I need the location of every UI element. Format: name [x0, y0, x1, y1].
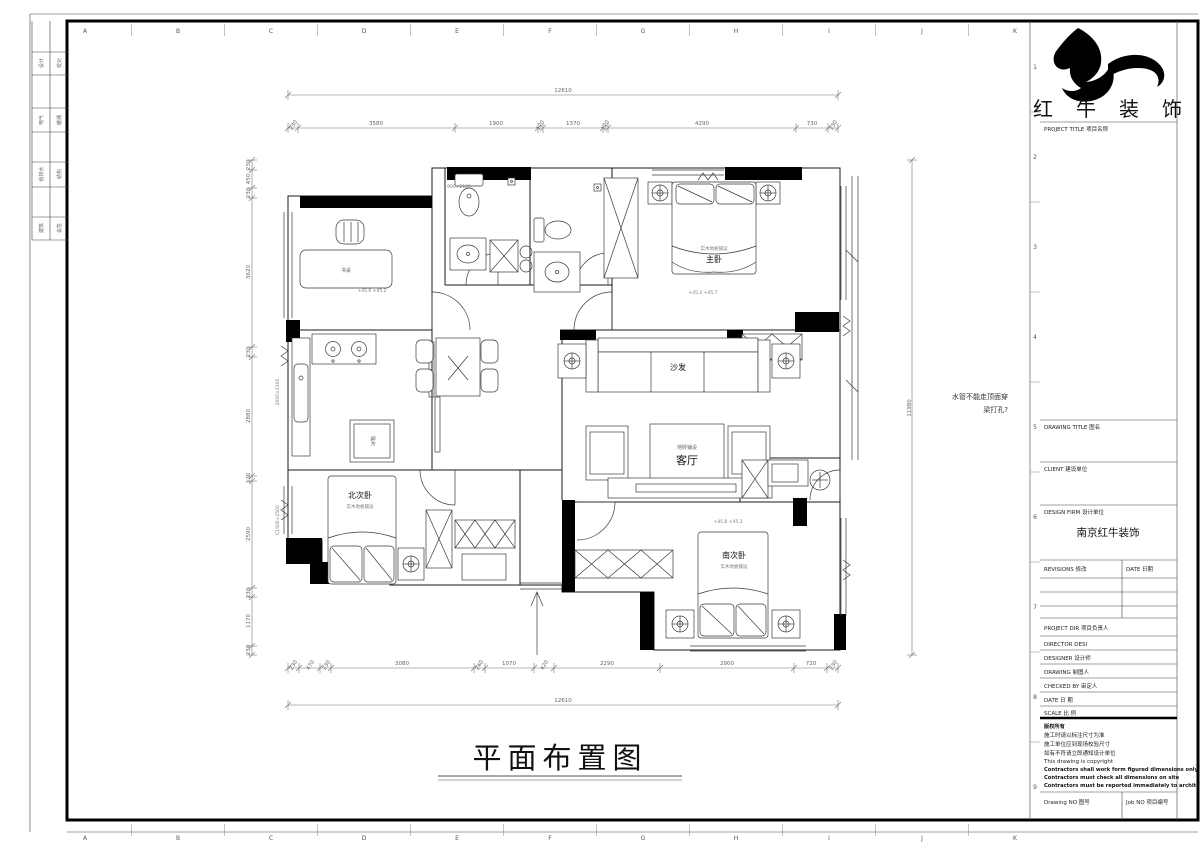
note-line: This drawing is copyright [1043, 759, 1114, 765]
grid-ref-label: E [455, 28, 459, 35]
client-label: CLIENT 建设单位 [1044, 465, 1088, 473]
elevation-note: +45.8 +45.3 [713, 519, 742, 525]
grid-ref-label: C [269, 28, 273, 35]
south-bedroom-label: 南次卧 [722, 550, 746, 560]
grid-ref-label: J [920, 835, 923, 842]
title-block: 红 牛 装 饰 PROJECT TITLE 项目名称 DRAWING TITLE… [1033, 28, 1200, 820]
date-label: DATE 日 期 [1044, 697, 1073, 704]
drawing-title-label: DRAWING TITLE 图名 [1044, 423, 1100, 431]
desk-label: 书桌 [341, 267, 351, 274]
dim: 230 [246, 159, 252, 170]
dim: 4290 [695, 121, 709, 127]
note-line: Contractors must check all dimensions on… [1044, 775, 1180, 781]
window-spec-note: 2000×2100 [275, 379, 281, 406]
dimension-lines [247, 90, 917, 710]
signature-strip: 设计 校对 电气 暖通 给排水 结构 建筑 会签 [32, 21, 68, 240]
elevation-note: +45.2 +45.7 [688, 290, 717, 296]
dim: 730 [807, 121, 818, 127]
dim: 420 [540, 659, 551, 672]
grid-ref-label: B [176, 28, 180, 35]
grid-ref-label: C [269, 835, 273, 842]
grid-letters: AABBCCDDEEFFGGHHIIJJKK123456789 [83, 28, 1037, 842]
dim-top-overall: 12610 [554, 88, 572, 94]
grid-ref-label: G [641, 28, 646, 35]
strip-label: 校对 [56, 58, 63, 68]
dim: 230 [246, 644, 252, 655]
grid-ref-label: D [362, 835, 367, 842]
dim: 1900 [489, 121, 503, 127]
strip-label: 电气 [38, 115, 45, 125]
grid-ref-label: A [83, 28, 88, 35]
copyright-notes: 版权所有 施工时请以标注尺寸为准 施工单位应到现场校验尺寸 如有不符请立即通知设… [1043, 722, 1200, 789]
strip-label: 设计 [38, 58, 45, 68]
grid-ref-label: B [176, 835, 180, 842]
grid-ref-label: I [828, 835, 830, 842]
window-spec-note: C1500×1500 [275, 505, 281, 535]
note-line: Contractors must be reported immediately… [1044, 783, 1200, 789]
strip-label: 给排水 [38, 166, 45, 181]
dim: 720 [806, 661, 817, 667]
grid-ref-label: 4 [1033, 334, 1037, 341]
dim: 120 [246, 472, 252, 483]
grid-ref-label: 3 [1033, 244, 1037, 251]
note-line: Contractors shall work form figured dime… [1044, 767, 1199, 773]
dim-right-overall: 11980 [907, 399, 913, 417]
project-dir-label: PROJECT DIR 项目负责人 [1044, 624, 1109, 632]
north-bedroom [328, 476, 452, 584]
grid-ref-label: 9 [1033, 784, 1037, 791]
grid-ref-label: I [828, 28, 830, 35]
designer-label: DESIGNER 设计师 [1044, 654, 1091, 662]
grid-ref-label: 8 [1033, 694, 1037, 701]
master-bedroom-label: 主卧 [706, 254, 722, 264]
grid-ref-label: H [734, 28, 739, 35]
project-title-label: PROJECT TITLE 项目名称 [1044, 125, 1109, 133]
grid-ref-label: J [920, 28, 923, 35]
drawing-no-label: Drawing NO 图号 [1044, 798, 1090, 806]
floor-plan: 书桌 冰箱 沙发 地砖铺设 客厅 实木地板铺设 主卧 北次卧 实木地板铺设 南次… [246, 88, 1008, 780]
dim: 1170 [246, 614, 252, 628]
bathroom-right [534, 184, 601, 292]
design-firm-value: 南京红牛装饰 [1077, 526, 1140, 539]
grid-ref-label: D [362, 28, 367, 35]
dim: 2880 [246, 409, 252, 423]
dim-bottom-overall: 12610 [554, 698, 572, 704]
dim: 450 [246, 173, 252, 184]
revisions-date-label: DATE 日期 [1126, 566, 1154, 573]
note-line: 版权所有 [1043, 722, 1065, 730]
strip-label: 结构 [56, 169, 63, 179]
grid-ref-label: 7 [1033, 604, 1037, 611]
dim: 470 [306, 659, 317, 672]
drawing-label: DRAWING 制图人 [1044, 668, 1089, 676]
design-firm-label: DESIGN FIRM 设计单位 [1044, 508, 1105, 516]
drawing-sheet: 设计 校对 电气 暖通 给排水 结构 建筑 会签 AABBCCDDEEFFGGH… [0, 0, 1200, 844]
grid-ref-label: 2 [1033, 154, 1037, 161]
dim: 1370 [566, 121, 580, 127]
grid-ref-label: 5 [1033, 424, 1037, 431]
strip-label: 会签 [56, 223, 63, 233]
dim: 120 [536, 119, 547, 132]
dim: 230 [246, 587, 252, 598]
entry-arrow [531, 592, 543, 655]
master-bedroom [604, 178, 780, 278]
dim: 1070 [502, 661, 516, 667]
sofa-label: 沙发 [670, 362, 686, 372]
pipe-note: 梁打孔? [983, 405, 1008, 414]
dim: 3080 [395, 661, 409, 667]
grid-ref-label: G [641, 835, 646, 842]
grid-ref-label: F [548, 28, 552, 35]
living-floor-label: 地砖铺设 [677, 444, 697, 451]
drawing-title-text: 平面布置图 [472, 742, 647, 775]
small-bathroom [742, 460, 830, 498]
north-floor-label: 实木地板铺设 [347, 503, 374, 510]
director-label: DIRECTOR DESI [1044, 642, 1087, 648]
dim: 2900 [720, 661, 734, 667]
grid-ref-label: K [1013, 28, 1018, 35]
note-line: 施工单位应到现场校验尺寸 [1044, 740, 1111, 748]
grid-ref-label: F [548, 835, 552, 842]
strip-label: 暖通 [56, 115, 63, 125]
job-no-label: Job NO 项目编号 [1125, 798, 1169, 806]
strip-label: 建筑 [38, 223, 45, 233]
study-room [300, 220, 392, 288]
grid-ref-label: H [734, 835, 739, 842]
living-room-label: 客厅 [676, 453, 698, 467]
south-bedroom [575, 532, 800, 638]
grid-ref-label: 1 [1033, 64, 1037, 71]
scale-label: SCALE 比 例 [1044, 709, 1077, 717]
pipe-note: 水管不能走顶面穿 [952, 392, 1008, 401]
grid-ref-label: K [1013, 835, 1018, 842]
dim: 2290 [600, 661, 614, 667]
dim: 2590 [246, 527, 252, 541]
company-name: 红 牛 装 饰 [1033, 98, 1191, 121]
dim: 3580 [369, 121, 383, 127]
entry [455, 520, 543, 655]
north-bedroom-label: 北次卧 [348, 490, 372, 500]
grid-ref-label: A [83, 835, 88, 842]
south-floor-label: 实木地板铺设 [721, 563, 748, 570]
dim: 3620 [246, 265, 252, 279]
grid-ref-label: E [455, 835, 459, 842]
dim: 230 [246, 187, 252, 198]
revisions-label: REVISIONS 修改 [1044, 565, 1087, 573]
door-spec-note: 900×2100 [447, 184, 471, 190]
elevation-note: +45.6 +45.2 [357, 288, 386, 294]
grid-ref-label: 6 [1033, 514, 1037, 521]
dim: 230 [246, 346, 252, 357]
note-line: 如有不符请立即通知设计单位 [1044, 749, 1116, 757]
bull-logo-icon [1054, 28, 1165, 102]
note-line: 施工时请以标注尺寸为准 [1044, 731, 1105, 739]
drawing-title: 平面布置图 [438, 742, 682, 780]
dining-area [416, 338, 498, 396]
fridge-label: 冰箱 [370, 436, 377, 446]
checked-by-label: CHECKED BY 审定人 [1044, 682, 1098, 690]
sheet-border [30, 14, 1198, 832]
dim: 120 [601, 119, 612, 132]
master-floor-label: 实木地板铺设 [701, 245, 728, 252]
kitchen [292, 334, 394, 462]
